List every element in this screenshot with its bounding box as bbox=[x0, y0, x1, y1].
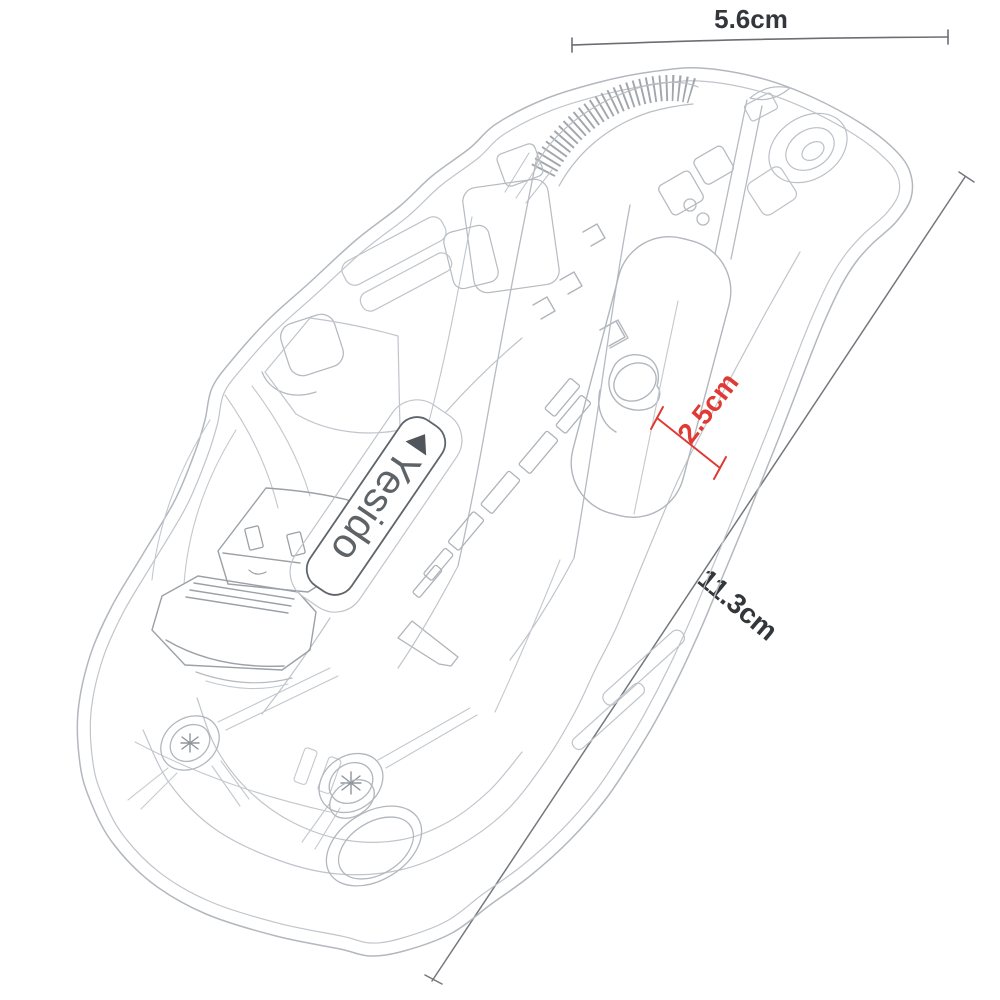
svg-text:11.3cm: 11.3cm bbox=[692, 563, 783, 647]
svg-text:2.5cm: 2.5cm bbox=[671, 367, 744, 449]
svg-text:5.6cm: 5.6cm bbox=[714, 4, 788, 34]
